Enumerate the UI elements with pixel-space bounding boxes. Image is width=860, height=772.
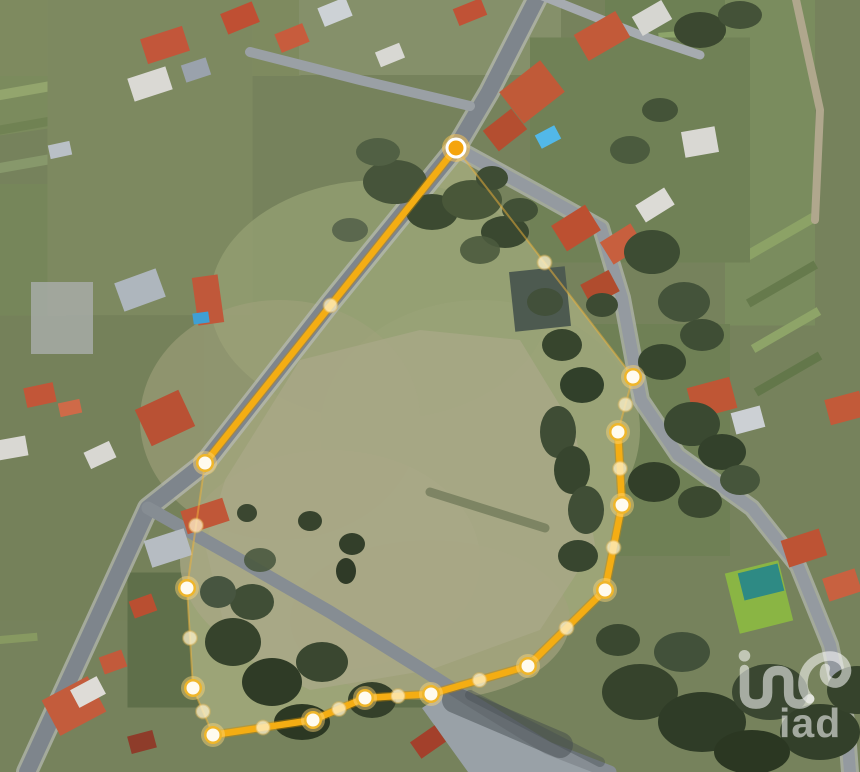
- tree-cluster: [680, 319, 724, 351]
- tree-cluster: [527, 288, 563, 316]
- vertex-core: [199, 457, 212, 470]
- boundary-midpoint-handle[interactable]: [332, 702, 346, 716]
- tree-cluster: [628, 462, 680, 502]
- vertex-core: [627, 371, 640, 384]
- boundary-midpoint-handle[interactable]: [391, 689, 405, 703]
- tree-cluster: [596, 624, 640, 656]
- tree-cluster: [339, 533, 365, 555]
- tree-cluster: [205, 618, 261, 666]
- tree-cluster: [654, 632, 710, 672]
- boundary-midpoint-handle[interactable]: [189, 519, 203, 533]
- tree-cluster: [642, 98, 678, 122]
- boundary-midpoint-handle[interactable]: [196, 705, 210, 719]
- tree-cluster: [237, 504, 257, 522]
- boundary-midpoint-handle[interactable]: [183, 631, 197, 645]
- tree-cluster: [332, 218, 368, 242]
- aerial-map[interactable]: iad: [0, 0, 860, 772]
- origin-core: [449, 141, 464, 156]
- field-patch: [31, 282, 93, 354]
- boundary-midpoint-handle[interactable]: [560, 621, 574, 635]
- tree-cluster: [200, 576, 236, 608]
- tree-cluster: [242, 658, 302, 706]
- tree-cluster: [624, 230, 680, 274]
- tree-cluster: [244, 548, 276, 572]
- tree-cluster: [230, 584, 274, 620]
- vertex-core: [522, 660, 535, 673]
- tree-cluster: [356, 138, 400, 166]
- boundary-midpoint-handle[interactable]: [324, 299, 338, 313]
- tree-cluster: [460, 236, 500, 264]
- vertex-core: [181, 582, 194, 595]
- tree-cluster: [638, 344, 686, 380]
- tree-cluster: [296, 642, 348, 682]
- tree-cluster: [542, 329, 582, 361]
- tree-cluster: [658, 282, 710, 322]
- vertex-core: [359, 692, 372, 705]
- vertex-core: [616, 499, 629, 512]
- vertex-core: [425, 688, 438, 701]
- vertex-core: [612, 426, 625, 439]
- vertex-core: [599, 584, 612, 597]
- tree-cluster: [718, 1, 762, 29]
- boundary-midpoint-handle[interactable]: [473, 673, 487, 687]
- boundary-midpoint-handle[interactable]: [256, 721, 270, 735]
- vertex-core: [207, 729, 220, 742]
- vertex-core: [187, 682, 200, 695]
- tree-cluster: [336, 558, 356, 584]
- tree-cluster: [586, 293, 618, 317]
- tree-cluster: [502, 198, 538, 222]
- tree-cluster: [674, 12, 726, 48]
- tree-cluster: [714, 730, 790, 772]
- tree-cluster: [560, 367, 604, 403]
- boundary-midpoint-handle[interactable]: [607, 541, 621, 555]
- satellite-imagery-canvas[interactable]: [0, 0, 860, 772]
- tree-cluster: [678, 486, 722, 518]
- boundary-midpoint-handle[interactable]: [538, 256, 552, 270]
- tree-cluster: [568, 486, 604, 534]
- tree-cluster: [720, 465, 760, 495]
- tree-cluster: [558, 540, 598, 572]
- tree-cluster: [610, 136, 650, 164]
- vertex-core: [307, 714, 320, 727]
- tree-cluster: [698, 434, 746, 470]
- tree-cluster: [298, 511, 322, 531]
- tree-cluster: [476, 166, 508, 190]
- boundary-midpoint-handle[interactable]: [613, 462, 627, 476]
- swimming-pool: [192, 311, 209, 324]
- boundary-midpoint-handle[interactable]: [619, 398, 633, 412]
